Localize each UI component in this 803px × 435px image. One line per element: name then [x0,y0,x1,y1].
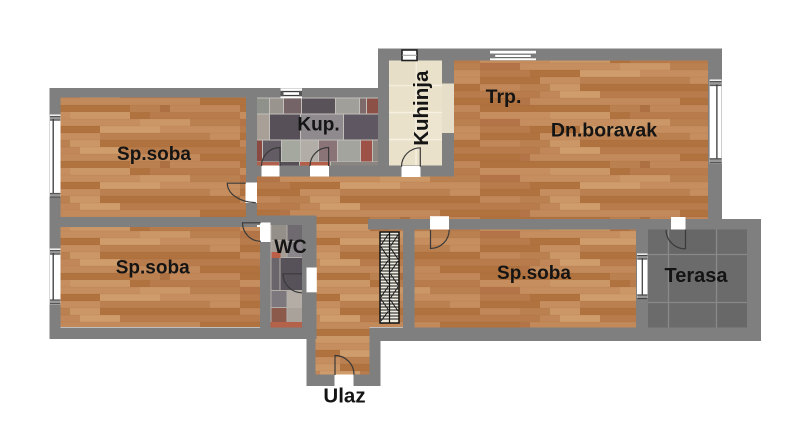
svg-text:Sp.soba: Sp.soba [117,144,191,165]
svg-text:WC: WC [274,236,307,258]
svg-text:Kuhinja: Kuhinja [410,70,433,146]
svg-text:Terasa: Terasa [664,265,728,287]
svg-text:Sp.soba: Sp.soba [497,263,571,284]
svg-text:Sp.soba: Sp.soba [116,257,190,278]
svg-text:Ulaz: Ulaz [323,385,365,408]
svg-text:Dn.boravak: Dn.boravak [551,120,657,142]
svg-text:Trp.: Trp. [486,86,522,108]
svg-text:Kup.: Kup. [297,115,339,136]
